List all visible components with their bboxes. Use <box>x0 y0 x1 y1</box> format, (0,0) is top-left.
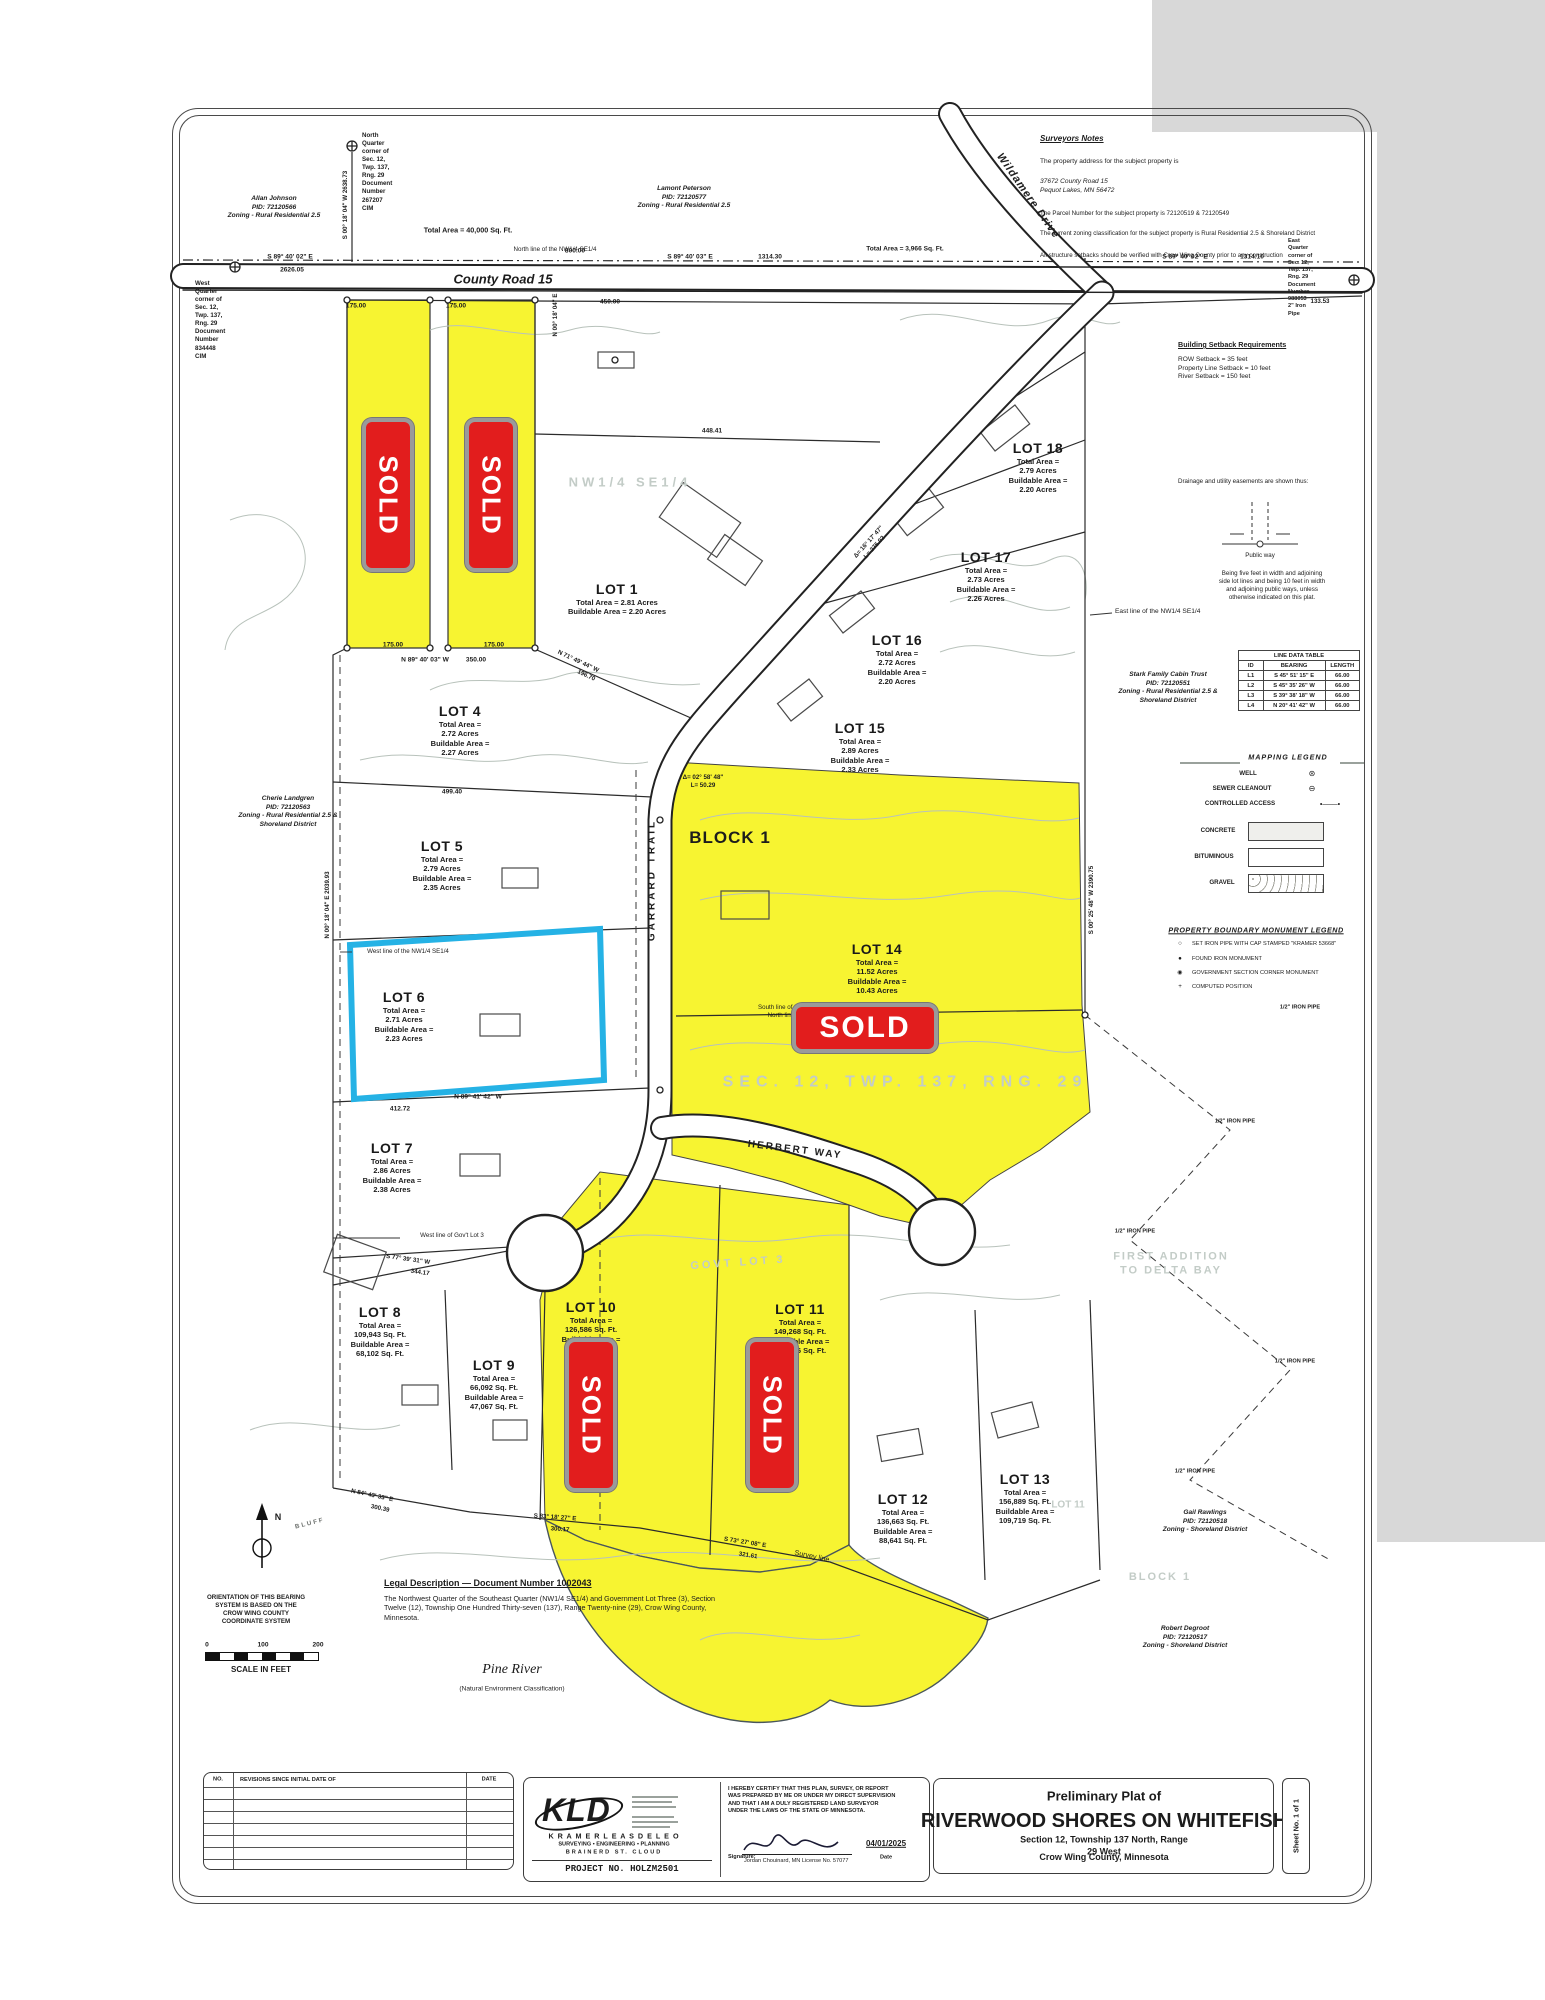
orientation-note: ORIENTATION OF THIS BEARING SYSTEM IS BA… <box>207 1594 305 1626</box>
dim: 350.00 <box>466 657 486 666</box>
sold-banner-lot11: SOLD <box>746 1338 798 1492</box>
gravel-swatch <box>1248 874 1324 893</box>
lot-15-label: LOT 15 Total Area = 2.89 Acres Buildable… <box>831 720 890 775</box>
access-symbol: •───• <box>1320 799 1340 808</box>
pine-river-label: Pine River <box>482 1661 541 1679</box>
monument-symbol-open: ○ <box>1178 940 1182 948</box>
bituminous-swatch <box>1248 848 1324 867</box>
surveyors-note-parcel: The Parcel Number for the subject proper… <box>1040 210 1360 218</box>
firm-offices: BRAINERD ST. CLOUD <box>566 1849 663 1856</box>
easement-diagram <box>1222 502 1298 547</box>
dim: 175.00 <box>383 642 403 651</box>
neighbor-cherie-landgren: Cherie Landgren PID: 72120563 Zoning - R… <box>238 795 337 829</box>
neighbor-stark-family: Stark Family Cabin Trust PID: 72120551 Z… <box>1118 671 1217 705</box>
kld-logo: KLD <box>542 1792 611 1829</box>
road-area-label: Total Area = 3,966 Sq. Ft. <box>866 246 944 255</box>
lot-5-label: LOT 5 Total Area = 2.79 Acres Buildable … <box>413 838 472 893</box>
legend-sewer: SEWER CLEANOUT <box>1213 785 1272 793</box>
line-data-table: LINE DATA TABLE ID BEARING LENGTH L1S 45… <box>1238 650 1360 711</box>
sold-banner-lot14: SOLD <box>792 1003 938 1053</box>
mapping-legend-title: MAPPING LEGEND <box>1248 752 1328 761</box>
lot-9-label: LOT 9 Total Area = 66,092 Sq. Ft. Builda… <box>465 1357 524 1412</box>
surveyors-note-line: The property address for the subject pro… <box>1040 158 1179 167</box>
scale-tick-0: 0 <box>205 1642 209 1651</box>
dim: S 89° 40' 02" E <box>267 254 312 263</box>
section-township-range-label: SEC. 12, TWP. 137, RNG. 29 <box>723 1073 1088 1094</box>
dim: 1314.10 <box>1240 254 1264 263</box>
signature-squiggle <box>742 1830 842 1856</box>
line-table-header: LENGTH <box>1325 661 1359 670</box>
dim: N 00° 18' 04" E <box>552 294 560 337</box>
monument-symbol-computed: + <box>1178 983 1182 991</box>
east-line-label: East line of the NW1/4 SE1/4 <box>1115 608 1200 617</box>
lot11-faded-label: LOT 11 <box>1051 1499 1084 1512</box>
dim: 1314.30 <box>758 254 782 263</box>
setback-lines: ROW Setback = 35 feet Property Line Setb… <box>1178 356 1271 382</box>
first-addition-label: FIRST ADDITION TO DELTA BAY <box>1113 1250 1229 1279</box>
block1-faded-label: BLOCK 1 <box>1129 1570 1191 1584</box>
easement-note: Being five feet in width and adjoining s… <box>1219 570 1325 602</box>
north-arrow-letter: N <box>275 1512 282 1524</box>
line-table-row: L3S 39° 38' 18" W66.00 <box>1239 690 1359 700</box>
setback-title: Building Setback Requirements <box>1178 340 1286 349</box>
legend-bituminous: BITUMINOUS <box>1194 853 1233 861</box>
iron-pipe-label: 1/2" IRON PIPE <box>1175 1468 1215 1475</box>
line-table-title: LINE DATA TABLE <box>1239 651 1359 660</box>
sold-banner-lot2: SOLD <box>362 418 414 572</box>
lot-12-label: LOT 12 Total Area = 136,663 Sq. Ft. Buil… <box>874 1491 933 1546</box>
curve-data: Δ= 02° 58' 48" L= 50.29 <box>683 774 724 790</box>
lot-14-label: LOT 14 Total Area = 11.52 Acres Buildabl… <box>848 941 907 996</box>
firm-name: K R A M E R L E A S D E L E O <box>548 1831 679 1840</box>
dim: N 89° 40' 03" W <box>401 657 449 666</box>
scale-tick-100: 100 <box>257 1642 268 1651</box>
lot-4-label: LOT 4 Total Area = 2.72 Acres Buildable … <box>431 703 490 758</box>
dim: S 89° 40' 03" E <box>667 254 712 263</box>
lot-17-label: LOT 17 Total Area = 2.73 Acres Buildable… <box>957 549 1016 604</box>
neighbor-allan-johnson: Allan Johnson PID: 72120566 Zoning - Rur… <box>228 195 321 221</box>
neighbor-lamont-peterson: Lamont Peterson PID: 72120577 Zoning - R… <box>638 185 731 211</box>
concrete-swatch <box>1248 822 1324 841</box>
monument-item-3: GOVERNMENT SECTION CORNER MONUMENT <box>1192 970 1319 977</box>
surveyors-note-address: 37672 County Road 15 Pequot Lakes, MN 56… <box>1040 178 1114 195</box>
sold-banner-lot3: SOLD <box>465 418 517 572</box>
dim: S 00° 18' 04" W 2638.73 <box>342 171 350 239</box>
line-table-row: L1S 45° 51' 15" E66.00 <box>1239 670 1359 680</box>
west-govt-lot3-label: West line of Gov't Lot 3 <box>420 1232 484 1240</box>
monument-symbol-filled: ● <box>1178 955 1182 963</box>
sewer-symbol: ⊖ <box>1309 784 1316 794</box>
dim: 175.00 <box>484 642 504 651</box>
dim: N 89° 41' 42" W <box>454 1094 502 1103</box>
dim: 300.17 <box>550 1525 569 1534</box>
plat-title: RIVERWOOD SHORES ON WHITEFISH <box>921 1808 1287 1834</box>
easement-public-way: Public way <box>1245 552 1275 560</box>
date-label: Date <box>880 1854 892 1861</box>
sheet-number-block: Sheet No. 1 of 1 <box>1282 1778 1310 1874</box>
lot-1-label: LOT 1 Total Area = 2.81 Acres Buildable … <box>568 581 666 617</box>
quarter-section-label: NW1/4 SE1/4 <box>569 475 692 492</box>
revisions-col-date: DATE <box>482 1776 497 1783</box>
iron-pipe-label: 1/2" IRON PIPE <box>1275 1358 1315 1365</box>
dim: 412.72 <box>390 1106 410 1115</box>
scale-bar <box>205 1652 319 1661</box>
lot-16-label: LOT 16 Total Area = 2.72 Acres Buildable… <box>868 632 927 687</box>
section-line-label: North line of the NW1/4 SE1/4 <box>514 246 597 254</box>
iron-pipe-label: 1/2" IRON PIPE <box>1215 1118 1255 1125</box>
north-arrow <box>253 1503 271 1568</box>
dim: N 00° 18' 04" E 2039.93 <box>324 871 332 938</box>
well-symbol: ⊛ <box>1309 769 1316 779</box>
lot-7-label: LOT 7 Total Area = 2.86 Acres Buildable … <box>363 1140 422 1195</box>
dim: 499.40 <box>442 789 462 798</box>
legend-access: CONTROLLED ACCESS <box>1205 800 1275 808</box>
certification-date: 04/01/2025 <box>866 1839 906 1849</box>
legend-gravel: GRAVEL <box>1209 879 1234 887</box>
dim: S 00° 25' 48" W 2390.75 <box>1088 866 1096 934</box>
monument-item-4: COMPUTED POSITION <box>1192 984 1252 991</box>
sold-banner-lot10: SOLD <box>565 1338 617 1492</box>
road-label-county-road-15: County Road 15 <box>454 272 553 289</box>
revisions-col-no: NO. <box>213 1776 223 1783</box>
pine-river-classification: (Natural Environment Classification) <box>459 1686 564 1695</box>
legal-description-title: Legal Description — Document Number 1002… <box>384 1578 592 1590</box>
iron-pipe-label: 1/2" IRON PIPE <box>1280 1004 1320 1011</box>
dim: 175.00 <box>346 303 366 312</box>
monument-symbol-section: ◉ <box>1177 969 1182 977</box>
monument-item-2: FOUND IRON MONUMENT <box>1192 956 1262 963</box>
lot-13-label: LOT 13 Total Area = 156,889 Sq. Ft. Buil… <box>996 1471 1055 1526</box>
title-sub2: Crow Wing County, Minnesota <box>1039 1852 1168 1864</box>
certification-text: I HEREBY CERTIFY THAT THIS PLAN, SURVEY,… <box>728 1786 895 1815</box>
legend-concrete: CONCRETE <box>1201 827 1236 835</box>
line-table-row: L2S 45° 35' 26" W66.00 <box>1239 680 1359 690</box>
dim: 450.00 <box>600 299 620 308</box>
surveyors-notes-title: Surveyors Notes <box>1040 134 1104 144</box>
dim: 175.00 <box>446 303 466 312</box>
revisions-table: NO. REVISIONS SINCE INITIAL DATE OF DATE <box>203 1772 514 1870</box>
signature-name: Jordan Chouinard, MN License No. 57077 <box>744 1858 848 1865</box>
scale-label: SCALE IN FEET <box>231 1665 291 1675</box>
plat-sheet: North Quarter corner of Sec. 12, Twp. 13… <box>0 0 1545 2000</box>
revisions-col-desc: REVISIONS SINCE INITIAL DATE OF <box>240 1777 336 1784</box>
lot-18-label: LOT 18 Total Area = 2.79 Acres Buildable… <box>1009 440 1068 495</box>
title-pre: Preliminary Plat of <box>1047 1789 1161 1806</box>
iron-pipe-label: 1/2" IRON PIPE <box>1115 1228 1155 1235</box>
neighbor-robert-degroot: Robert Degroot PID: 72120517 Zoning - Sh… <box>1143 1625 1228 1651</box>
legal-description-body: The Northwest Quarter of the Southeast Q… <box>384 1594 729 1622</box>
dim: 448.41 <box>702 428 722 437</box>
easement-intro: Drainage and utility easements are shown… <box>1178 478 1308 486</box>
lot-6-label: LOT 6 Total Area = 2.71 Acres Buildable … <box>375 989 434 1044</box>
block1-label: BLOCK 1 <box>689 827 771 849</box>
legend-well: WELL <box>1239 770 1257 778</box>
west-line-label: West line of the NW1/4 SE1/4 <box>367 948 449 956</box>
scale-tick-200: 200 <box>312 1642 323 1651</box>
road-area-label: Total Area = 40,000 Sq. Ft. <box>424 225 512 234</box>
line-table-header: ID <box>1239 661 1263 670</box>
dim: 2626.05 <box>280 267 304 276</box>
monument-legend-title: PROPERTY BOUNDARY MONUMENT LEGEND <box>1168 925 1343 934</box>
dim: S 89° 40' 02" E <box>1162 254 1207 263</box>
surveyors-note-zoning: The current zoning classification for th… <box>1040 230 1360 238</box>
title-block: Preliminary Plat of RIVERWOOD SHORES ON … <box>933 1778 1274 1874</box>
line-table-row: L4N 20° 41' 42" W66.00 <box>1239 700 1359 710</box>
monument-item-1: SET IRON PIPE WITH CAP STAMPED "KRAMER 5… <box>1192 941 1336 948</box>
project-number: PROJECT NO. HOLZM2501 <box>565 1864 678 1876</box>
road-label-garrard-trail: GARRARD TRAIL <box>646 819 659 941</box>
sheet-number: Sheet No. 1 of 1 <box>1291 1799 1300 1853</box>
firm-block: KLD K R A M E R L E A S D E L E O SURVEY… <box>523 1777 930 1882</box>
neighbor-gail-rawlings: Gail Rawlings PID: 72120518 Zoning - Sho… <box>1163 1509 1248 1535</box>
line-table-header: BEARING <box>1263 661 1325 670</box>
firm-services: SURVEYING • ENGINEERING • PLANNING <box>558 1841 669 1848</box>
dim: 133.53 <box>1311 298 1330 306</box>
lot-8-label: LOT 8 Total Area = 109,943 Sq. Ft. Build… <box>351 1304 410 1359</box>
